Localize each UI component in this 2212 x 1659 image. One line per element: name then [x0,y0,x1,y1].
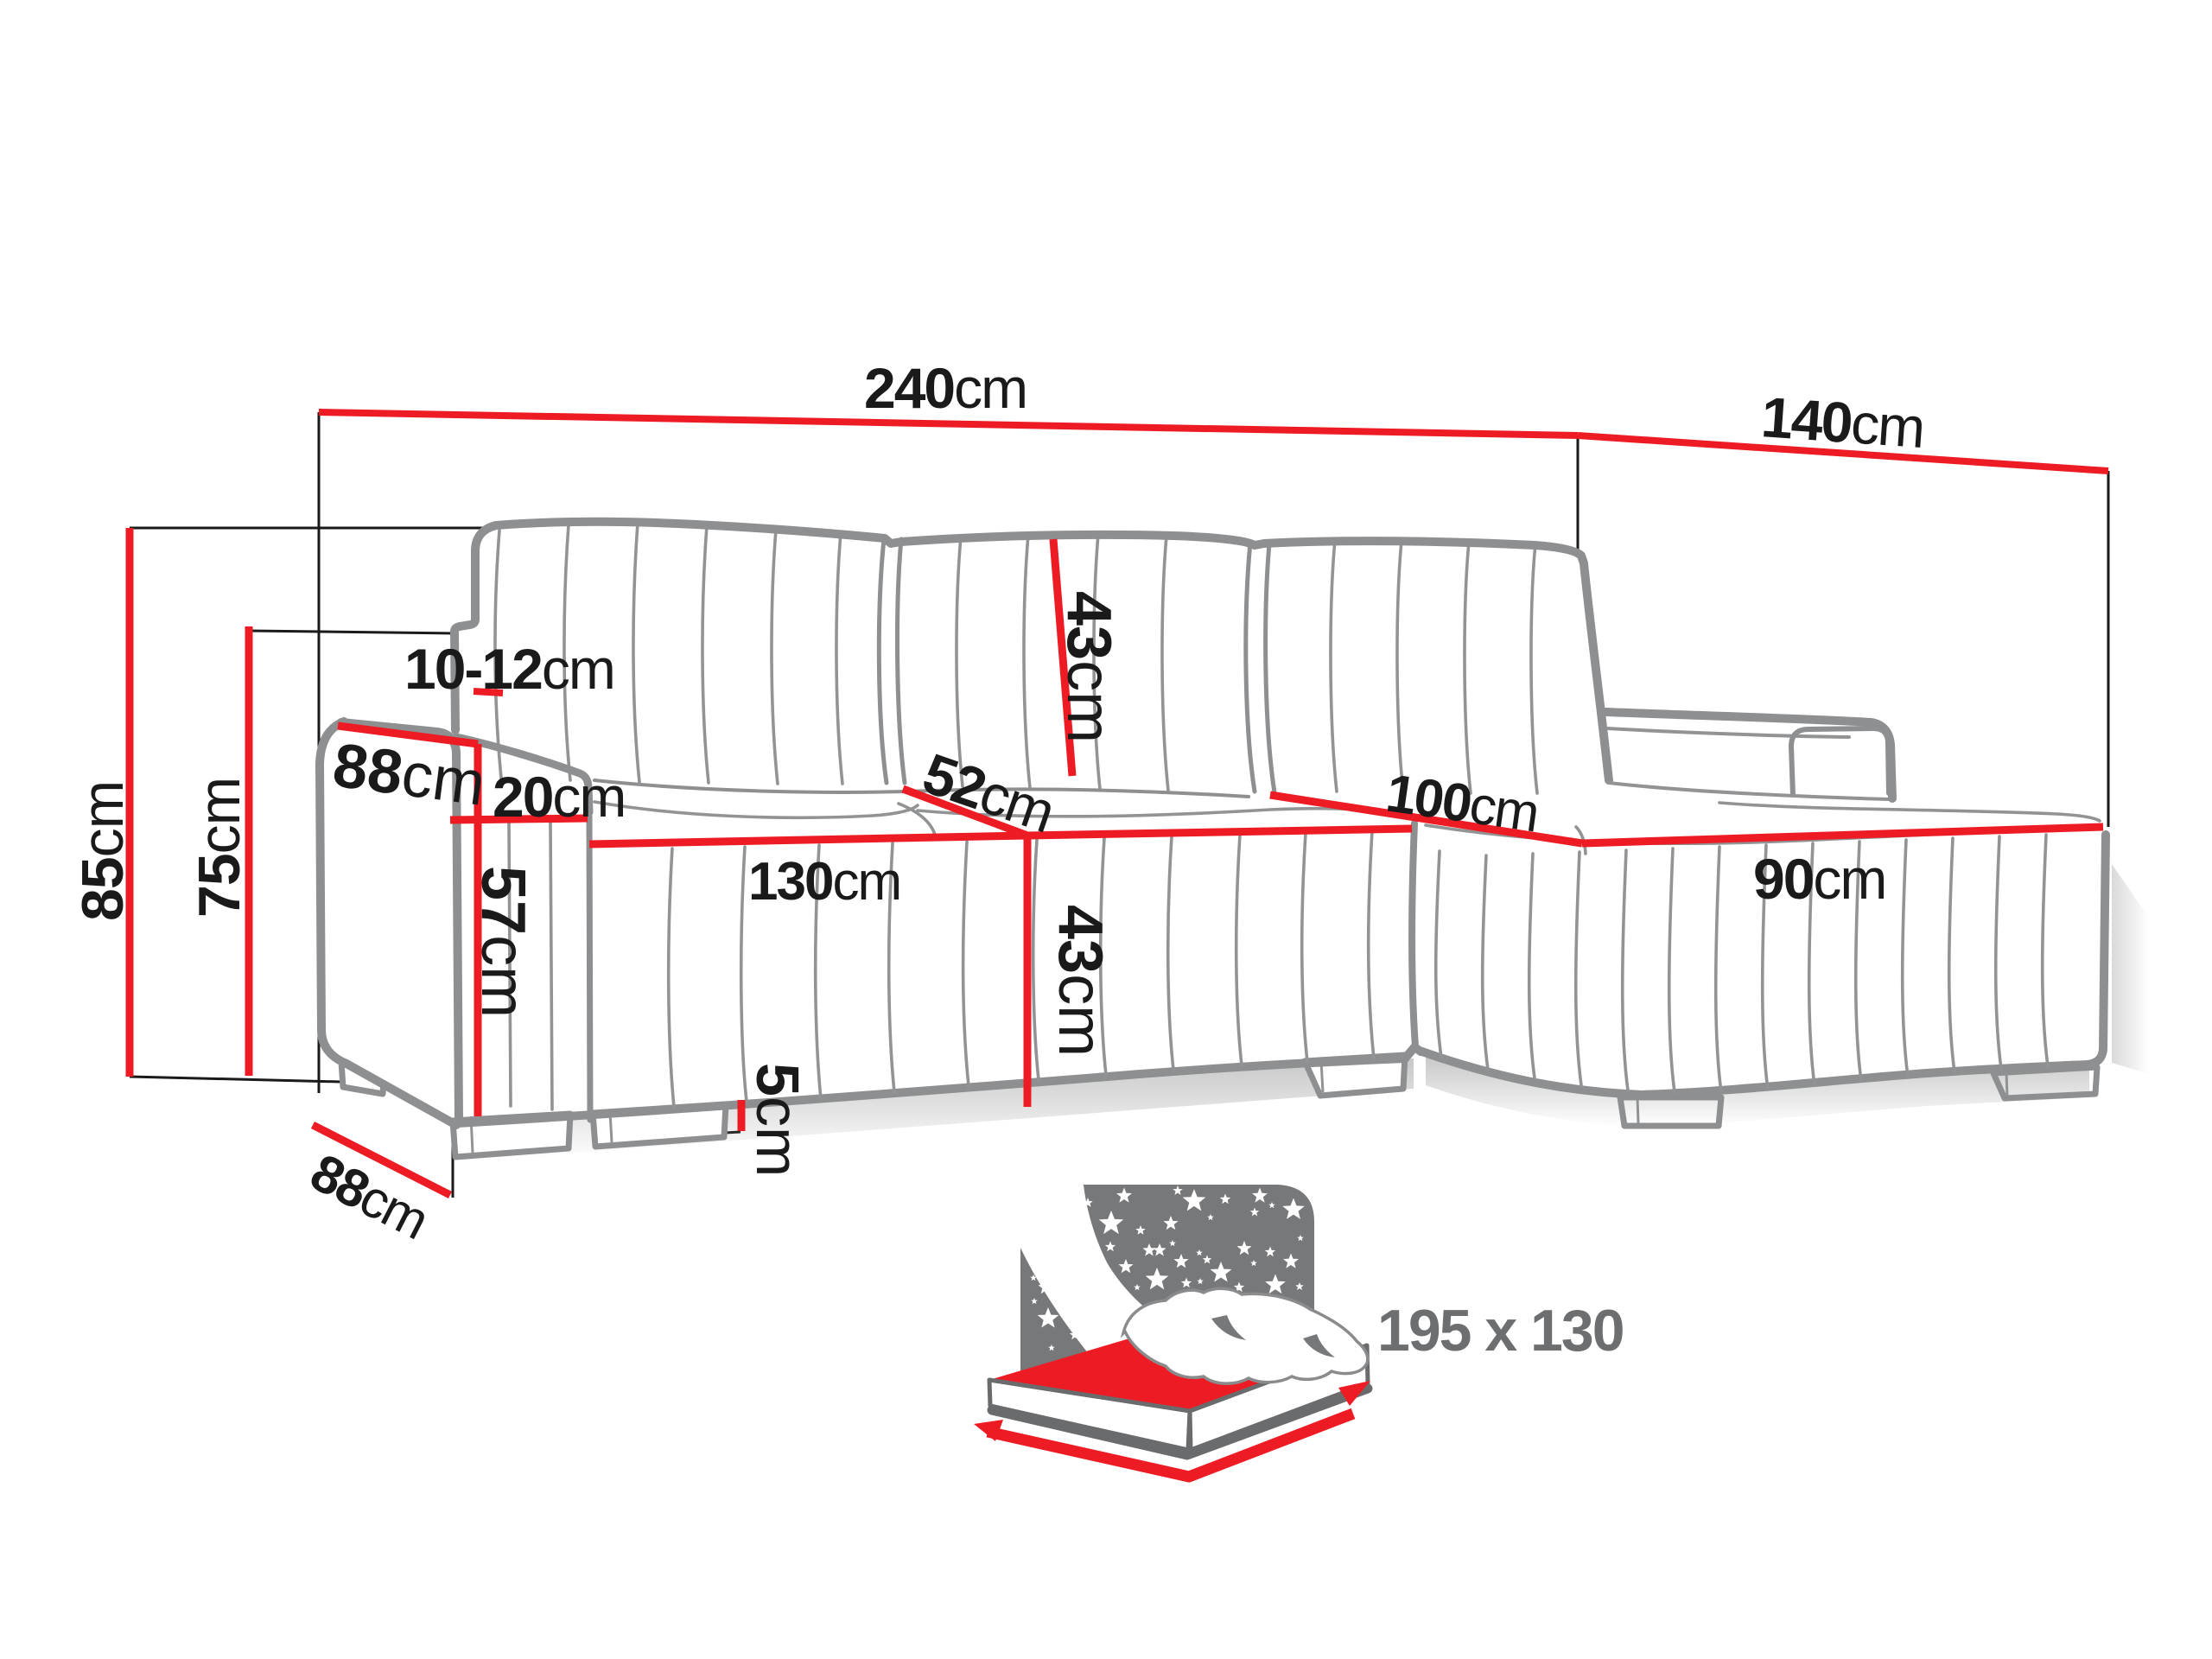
svg-text:43cm: 43cm [1054,591,1123,743]
svg-text:75cm: 75cm [187,778,252,918]
svg-text:5cm: 5cm [744,1063,811,1177]
svg-text:43cm: 43cm [1046,905,1115,1057]
svg-text:57cm: 57cm [468,866,537,1018]
svg-text:130cm: 130cm [748,852,900,912]
svg-text:10-12cm: 10-12cm [404,637,614,701]
svg-text:195 x 130: 195 x 130 [1377,1298,1624,1363]
svg-text:140cm: 140cm [1759,385,1926,460]
svg-text:90cm: 90cm [1753,847,1885,911]
svg-text:240cm: 240cm [864,356,1027,420]
svg-text:20cm: 20cm [493,765,625,829]
svg-text:85cm: 85cm [70,781,136,921]
